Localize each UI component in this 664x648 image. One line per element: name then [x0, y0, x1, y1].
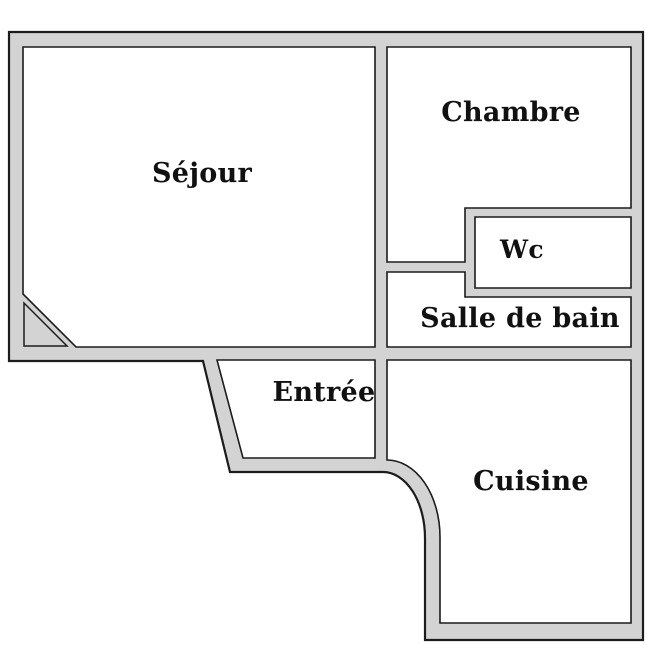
floor-plan: Séjour Chambre Wc Salle de bain Entrée C…	[0, 0, 664, 648]
room-label-entree: Entrée	[272, 377, 375, 408]
room-label-chambre: Chambre	[441, 97, 581, 128]
room-label-salle-de-bain: Salle de bain	[420, 303, 620, 334]
floor-plan-drawing: Séjour Chambre Wc Salle de bain Entrée C…	[0, 0, 664, 648]
room-sejour	[23, 47, 375, 347]
room-entree	[217, 360, 375, 458]
room-label-wc: Wc	[499, 235, 544, 264]
room-label-sejour: Séjour	[152, 158, 253, 189]
room-label-cuisine: Cuisine	[473, 466, 589, 497]
room-wc	[475, 217, 631, 288]
